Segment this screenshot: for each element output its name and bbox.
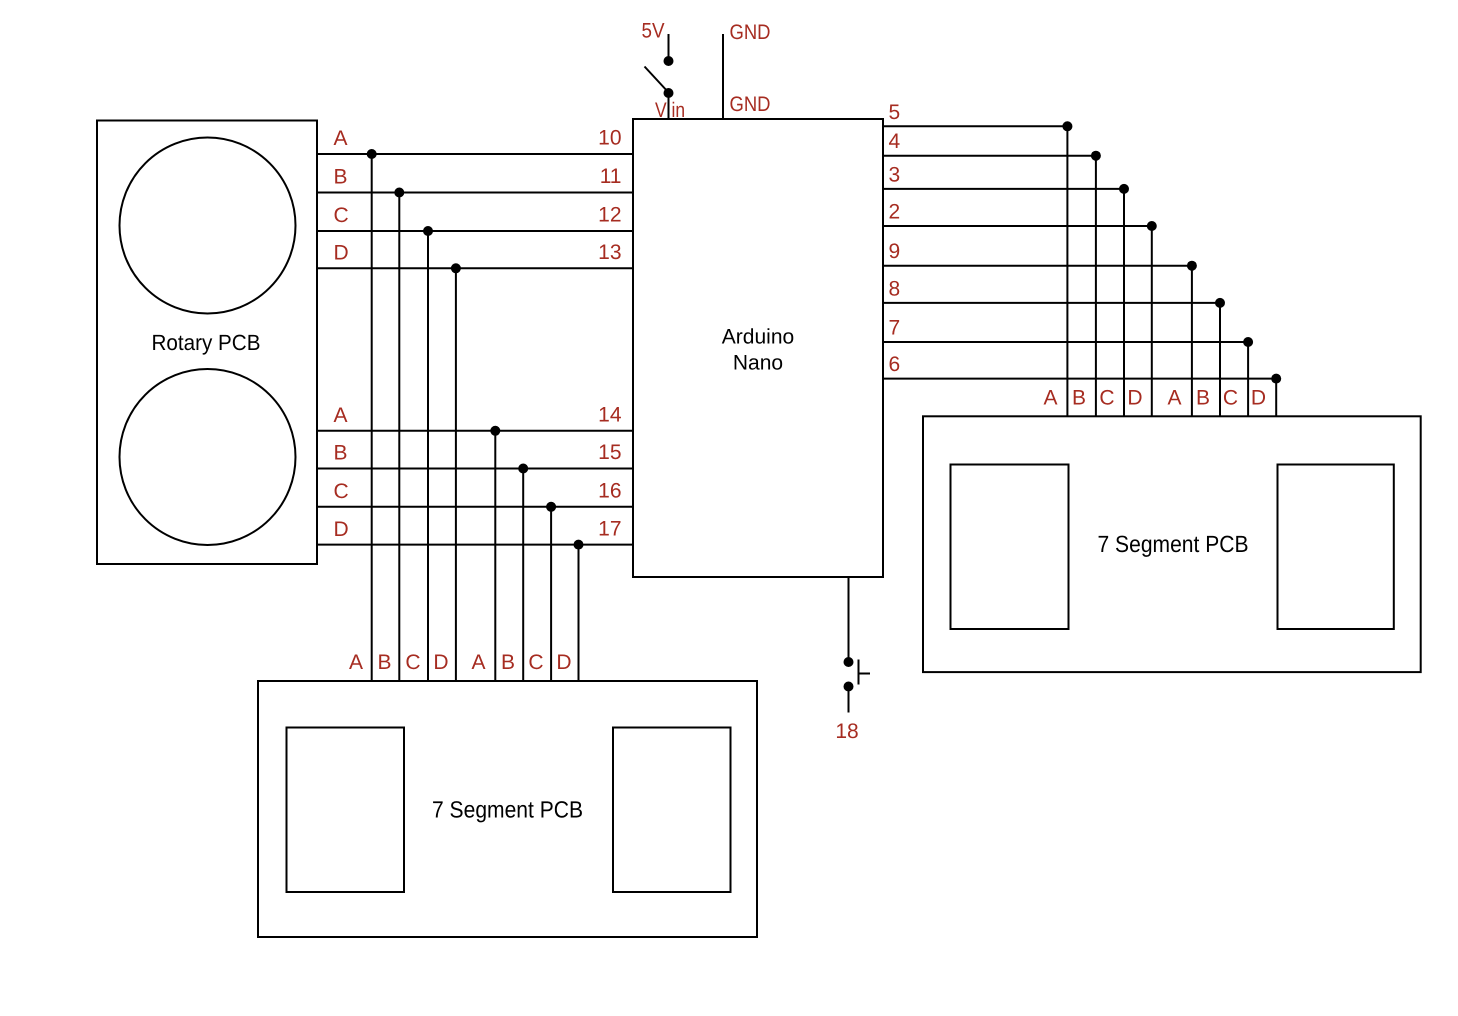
svg-text:A: A: [1043, 387, 1057, 410]
svg-text:18: 18: [835, 720, 858, 743]
svg-text:A: A: [334, 404, 348, 427]
svg-text:A: A: [349, 651, 363, 674]
svg-text:B: B: [1072, 387, 1086, 410]
svg-text:15: 15: [598, 441, 621, 464]
svg-text:D: D: [1127, 387, 1142, 410]
svg-text:Rotary PCB: Rotary PCB: [152, 330, 261, 355]
svg-text:7 Segment PCB: 7 Segment PCB: [1098, 531, 1249, 557]
svg-text:GND: GND: [730, 21, 771, 44]
svg-text:D: D: [334, 518, 349, 541]
svg-text:16: 16: [598, 480, 621, 503]
svg-text:B: B: [334, 166, 348, 189]
svg-text:D: D: [556, 651, 571, 674]
svg-text:5V: 5V: [642, 20, 665, 43]
svg-text:7: 7: [889, 317, 901, 340]
svg-text:B: B: [1196, 387, 1210, 410]
svg-text:A: A: [471, 651, 485, 674]
svg-text:V in: V in: [655, 99, 685, 122]
svg-text:Nano: Nano: [733, 352, 783, 375]
svg-text:GND: GND: [730, 93, 771, 116]
svg-text:B: B: [334, 442, 348, 465]
svg-text:D: D: [433, 651, 448, 674]
svg-text:17: 17: [598, 517, 621, 540]
svg-text:14: 14: [598, 404, 622, 427]
svg-text:B: B: [377, 651, 391, 674]
svg-text:Arduino: Arduino: [722, 326, 794, 349]
svg-text:C: C: [1099, 387, 1114, 410]
svg-text:B: B: [501, 651, 515, 674]
svg-text:D: D: [334, 242, 349, 265]
svg-text:A: A: [1167, 387, 1181, 410]
svg-text:13: 13: [598, 241, 621, 264]
svg-text:12: 12: [598, 204, 621, 227]
svg-text:6: 6: [889, 353, 901, 376]
svg-text:D: D: [1251, 387, 1266, 410]
svg-text:7 Segment PCB: 7 Segment PCB: [432, 797, 583, 823]
svg-text:C: C: [1223, 387, 1238, 410]
svg-text:C: C: [334, 204, 349, 227]
svg-text:A: A: [334, 127, 348, 150]
svg-text:C: C: [405, 651, 420, 674]
svg-text:4: 4: [889, 130, 901, 153]
svg-text:10: 10: [598, 127, 621, 150]
svg-text:9: 9: [889, 240, 901, 263]
svg-text:8: 8: [889, 277, 901, 300]
svg-text:11: 11: [600, 165, 622, 188]
svg-text:C: C: [334, 480, 349, 503]
svg-text:2: 2: [889, 201, 901, 224]
svg-text:C: C: [528, 651, 543, 674]
svg-text:5: 5: [889, 101, 901, 124]
svg-text:3: 3: [889, 163, 901, 186]
